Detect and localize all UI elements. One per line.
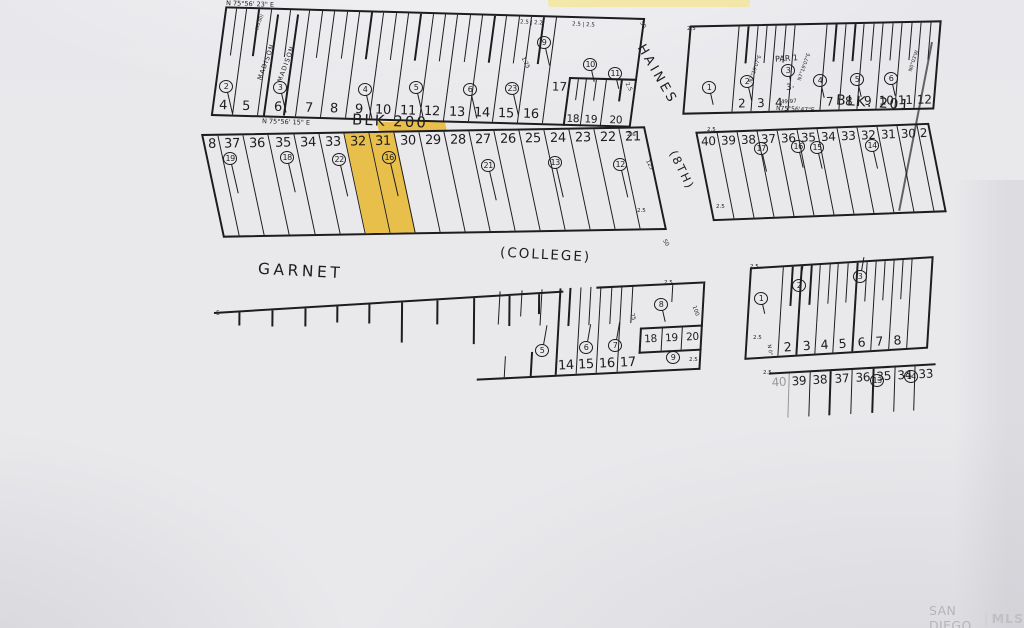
lot-number: 40 [701, 133, 716, 148]
lot-number: 31 [880, 126, 895, 141]
bearing-mid: N 75°56' 15" E [262, 117, 310, 127]
parcel-circle: 5 [535, 344, 549, 357]
lot-number: 12 [917, 94, 932, 108]
lot-number: 5 [838, 337, 847, 352]
lot-number: 3 [802, 339, 811, 354]
lot-tick [520, 290, 523, 316]
lot-number: 8 [894, 334, 903, 349]
lot-number: 31 [375, 133, 391, 148]
lot-number: 26 [500, 131, 516, 146]
parcel-circle: 4 [358, 83, 372, 96]
lot-number: 4 [820, 338, 829, 353]
dim-mark: 2.5 [637, 208, 646, 214]
lot-number: 14 [557, 359, 574, 375]
dim-mark: 2.5 [753, 335, 762, 341]
lot-number: 29 [425, 132, 441, 147]
parcel-circle: 6 [579, 341, 593, 354]
lot-number: 39 [791, 373, 806, 388]
parcel-circle: 2 [792, 279, 806, 292]
lot-number: 20 [610, 115, 623, 128]
lot-number: 15 [578, 358, 595, 374]
sub-lot-box: 181920 [638, 325, 702, 355]
lot-tick [671, 285, 673, 302]
lot-number: 33 [324, 134, 340, 149]
lot-number: 38 [812, 371, 827, 386]
dim-mark: 2.6 [627, 132, 636, 138]
lot-number: 15 [498, 107, 514, 122]
lot-number: 32 [349, 133, 365, 148]
parcel-circle: 7 [608, 339, 622, 352]
lot-tick [497, 291, 500, 324]
lot-number: 2 [783, 340, 792, 355]
plat-map-scan: 45678910111213141516 17 181920 837363534… [0, 0, 1024, 628]
parcel-circle: 1 [702, 81, 716, 94]
lot-cell: 18 [641, 329, 663, 352]
dim-mark: 2.5 | 2.2 [520, 19, 543, 26]
lot-number: 20 [686, 332, 699, 345]
lot-cell-cut [907, 258, 932, 348]
street-label-college: (COLLEGE) [500, 245, 592, 266]
lot-number: 23 [575, 129, 591, 144]
dim-mark: 2.5 [707, 127, 716, 133]
lot-number: 24 [550, 130, 566, 145]
lot-cell: 40 [767, 373, 789, 418]
lot-number: 30 [900, 125, 915, 140]
lot-tick [539, 289, 543, 325]
lot-number: 17 [552, 80, 568, 94]
lot-number: 16 [599, 357, 616, 373]
lot-number: 28 [450, 131, 466, 146]
lot-cell: 19 [661, 327, 683, 350]
parcel-circle: 6 [463, 83, 477, 96]
lot-number: 7 [876, 335, 885, 350]
block-201-row2: 40393837363534333231302 [695, 123, 947, 221]
lot-number: 35 [274, 134, 290, 149]
lot-number: 36 [855, 369, 870, 384]
lot-number: 6 [273, 101, 281, 116]
lot-number: 3 [757, 97, 765, 111]
parcel-circle: 5 [409, 81, 423, 94]
lot-cell: 33 [914, 365, 935, 410]
dim-mark: 2.5 [664, 280, 673, 286]
lot-number: 36 [249, 135, 265, 150]
lot-number: 39 [721, 132, 736, 147]
street-label-garnet: GARNET [258, 260, 344, 282]
lot-number: 33 [841, 128, 856, 143]
lot-number: 8 [330, 102, 338, 117]
south-middle-block: 14151617 181920 [477, 281, 706, 380]
lot-number: 34 [299, 134, 315, 149]
lot-cell: 17 [618, 284, 643, 371]
lot-number: 7 [826, 96, 834, 110]
watermark-text: SAN DIEGO [929, 603, 981, 628]
dim-mark: 2.5 [763, 370, 772, 376]
dim-mark: 5 [216, 310, 220, 317]
mls-watermark: SAN DIEGO|MLS [929, 603, 1024, 628]
lot-number: 13 [449, 106, 465, 121]
dim-mark: 2.5 [689, 357, 698, 363]
lot-number: 30 [400, 132, 416, 147]
dim-mark: 2.5 [687, 26, 696, 32]
parcel-circle: 9 [666, 351, 680, 364]
block-200-row2: 83736353433323130292827262524232221 [201, 126, 667, 237]
parcel-1-dim: 49.97 [781, 99, 797, 106]
lot-number: 2 [738, 97, 746, 111]
lot-number: 17 [620, 356, 637, 372]
lot-number: 27 [475, 131, 491, 146]
parcel-circle: 1 [754, 292, 768, 305]
parcel-circle: 2 [740, 75, 754, 88]
lot-cell: 39 [788, 372, 810, 417]
block-label-200: BLK 200 [352, 110, 429, 131]
parcel-circle: 6 [884, 72, 898, 85]
lot-number: 38 [741, 131, 756, 146]
parcel-circle: 3 [853, 270, 867, 283]
parcel-1-label: PAR 1 [775, 53, 799, 64]
dim-mark: 2.5 [716, 204, 725, 210]
dim-mark: 2.5 | 2.5 [572, 21, 595, 28]
parcel-circle: 3 [781, 64, 795, 77]
lot-number: 37 [224, 135, 240, 150]
lot-number: 4 [219, 99, 227, 114]
lot-number: 6 [857, 336, 866, 351]
lot-number: 19 [584, 114, 597, 127]
lot-number: 37 [834, 370, 849, 385]
lot-number: 40 [771, 374, 786, 389]
watermark-brand: MLS [992, 611, 1024, 626]
lot-number: 7 [305, 102, 313, 117]
lot-number: 8 [208, 136, 216, 151]
parcel-circle: 2 [219, 80, 233, 93]
lot-tick [503, 357, 506, 378]
lot-number: 5 [242, 100, 250, 115]
block-top-edge [597, 281, 704, 288]
watermark-separator: | [984, 611, 989, 626]
parcel-1-note: 3· [786, 83, 795, 93]
lot-number: 18 [566, 113, 579, 126]
parcel-circle: 9 [537, 36, 551, 49]
dim-mark: 2.5 [750, 264, 759, 270]
lot-number: 33 [918, 365, 933, 380]
parcel-circle: 5 [850, 73, 864, 86]
lot-number: 19 [665, 333, 678, 346]
parcel-circle: 4 [813, 74, 827, 87]
lot-number: 22 [600, 129, 616, 144]
highlighter-strip-top [548, 0, 750, 7]
lot-tick [530, 352, 533, 376]
lot-number: 25 [525, 130, 541, 145]
lot-number: 18 [644, 334, 657, 347]
lot-cell: 20 [682, 327, 703, 350]
lot-cell: 37 [831, 370, 853, 415]
lot-number: 2 [920, 125, 928, 139]
dim-mark: 50 [661, 238, 670, 247]
lot-number: 16 [523, 108, 539, 123]
south-right-block-row1: 2345678 [744, 256, 933, 360]
lot-number: 34 [821, 128, 836, 143]
parcel-circle: 8 [654, 298, 668, 311]
parcel-circle: 3 [273, 81, 287, 94]
lot-cell: 38 [809, 371, 832, 416]
